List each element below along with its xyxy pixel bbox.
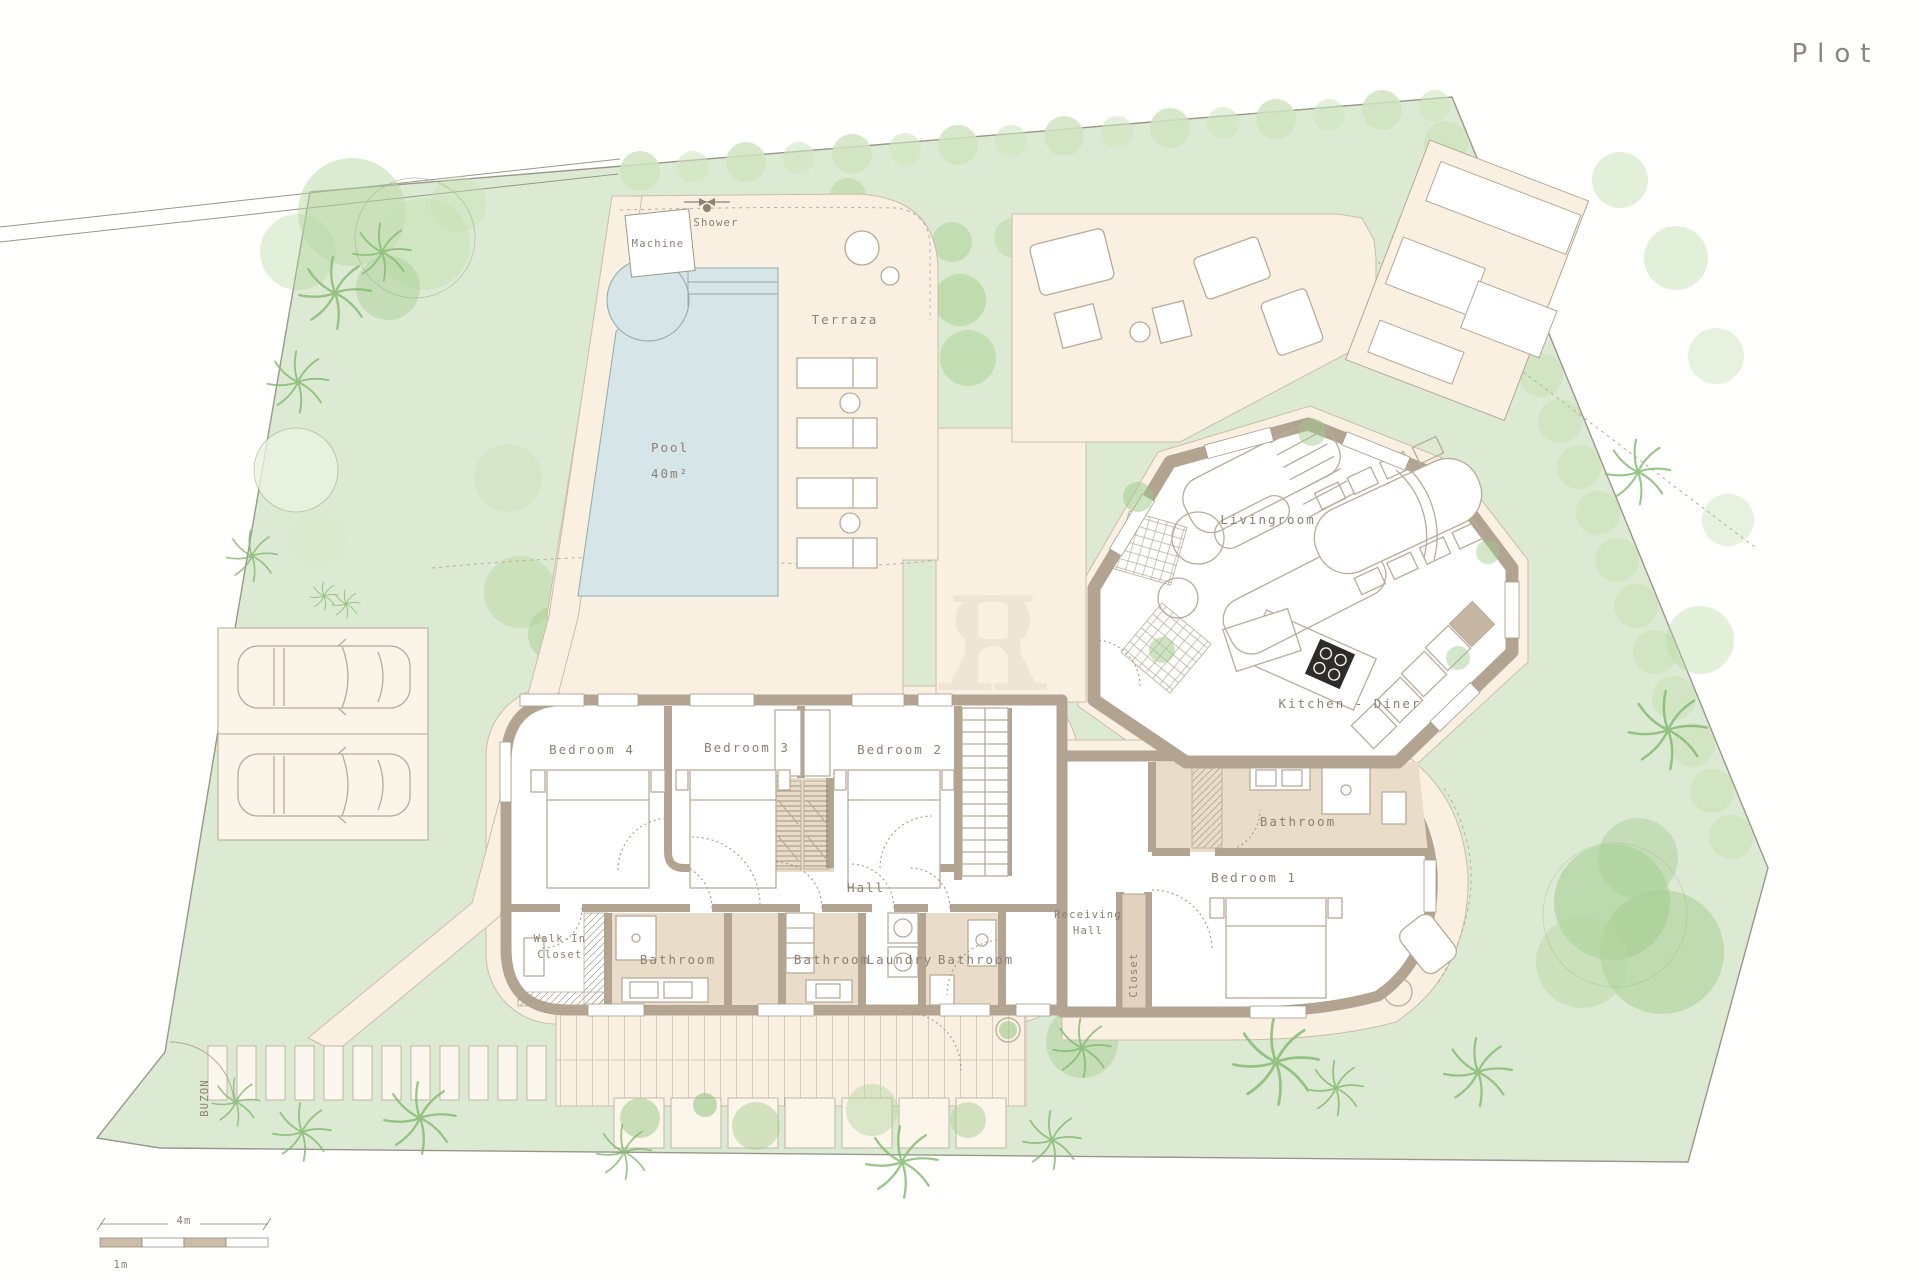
closet-label: Closet	[1128, 952, 1140, 997]
pool: Pool 40m²	[578, 259, 778, 596]
site-plan-svg: Pool 40m² Machine Shower Terraza	[0, 0, 1920, 1280]
beds	[531, 770, 954, 888]
scale-minor-label: 1m	[113, 1259, 128, 1271]
bedroom1-label: Bedroom 1	[1211, 870, 1297, 885]
bathroom2-label: Bathroom	[794, 952, 870, 967]
floor-plan-page: Pool 40m² Machine Shower Terraza	[0, 0, 1920, 1280]
receiving-hall-label-line1: Receiving	[1054, 909, 1122, 921]
walkin-closet-label-line1: Walk-In	[534, 933, 587, 945]
bathroom1-label: Bathroom	[640, 952, 716, 967]
receiving-hall-label-line2: Hall	[1073, 925, 1103, 937]
buzon-label: BUZON	[199, 1079, 211, 1117]
staircase	[962, 708, 1008, 876]
scale-major-label: 4m	[176, 1215, 191, 1227]
laundry-label: Laundry	[867, 952, 934, 967]
bedroom3-label: Bedroom 3	[704, 740, 790, 755]
bathroom3-label: Bathroom	[938, 952, 1014, 967]
hall-label: Hall	[847, 880, 885, 895]
bedroom2-label: Bedroom 2	[857, 742, 943, 757]
watermark-monogram: R R	[939, 569, 1047, 721]
walkin-closet-label-line2: Closet	[537, 949, 582, 961]
kitchen-diner-label: Kitchen - Diner	[1279, 696, 1422, 711]
livingroom-label: Livingroom	[1220, 512, 1315, 527]
svg-text:R: R	[939, 569, 1040, 721]
terraza-label: Terraza	[812, 312, 879, 327]
bedroom4-label: Bedroom 4	[549, 742, 635, 757]
carport	[218, 628, 428, 840]
pool-label: Pool	[651, 440, 689, 455]
shower-label: Shower	[693, 217, 738, 229]
pod-bathroom-label: Bathroom	[1260, 814, 1336, 829]
machine-label: Machine	[632, 238, 685, 250]
machine-room: Machine	[625, 209, 695, 277]
pool-area-label: 40m²	[651, 466, 689, 481]
page-title: Plot	[1791, 39, 1880, 69]
